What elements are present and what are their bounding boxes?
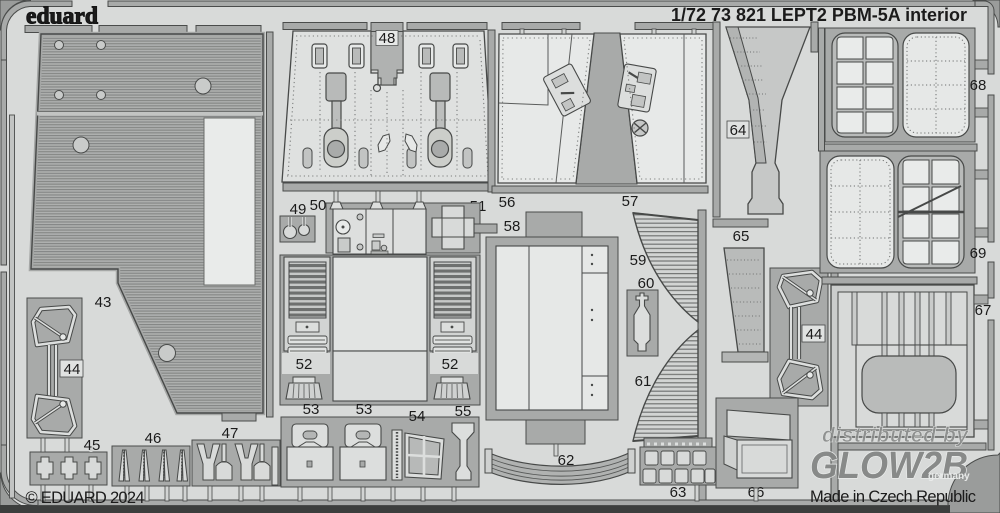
- svg-text:52: 52: [296, 356, 313, 373]
- svg-text:47: 47: [222, 425, 239, 442]
- svg-text:50: 50: [310, 197, 327, 214]
- svg-text:48: 48: [379, 30, 396, 47]
- svg-text:44: 44: [64, 361, 81, 378]
- svg-text:61: 61: [635, 373, 652, 390]
- svg-text:58: 58: [504, 218, 521, 235]
- svg-text:53: 53: [356, 401, 373, 418]
- svg-text:54: 54: [409, 408, 426, 425]
- svg-text:1/72 73 821 LEPT2 PBM-5A int: 1/72 73 821 LEPT2 PBM-5A interior: [671, 5, 967, 25]
- svg-text:57: 57: [622, 193, 639, 210]
- svg-text:germany: germany: [928, 471, 970, 482]
- svg-text:43: 43: [95, 294, 112, 311]
- svg-text:eduard: eduard: [26, 4, 99, 30]
- svg-text:60: 60: [638, 275, 655, 292]
- svg-text:69: 69: [970, 245, 987, 262]
- svg-text:53: 53: [303, 401, 320, 418]
- svg-text:52: 52: [442, 356, 459, 373]
- svg-text:45: 45: [84, 437, 101, 454]
- svg-text:67: 67: [975, 302, 992, 319]
- svg-text:59: 59: [630, 252, 647, 269]
- svg-text:63: 63: [670, 484, 687, 501]
- svg-text:65: 65: [733, 228, 750, 245]
- svg-text:55: 55: [455, 403, 472, 420]
- svg-text:Made in Czech Republic: Made in Czech Republic: [810, 488, 976, 506]
- svg-text:64: 64: [730, 122, 747, 139]
- svg-text:56: 56: [499, 194, 516, 211]
- svg-text:49: 49: [290, 201, 307, 218]
- svg-text:44: 44: [806, 326, 823, 343]
- svg-text:distributed by: distributed by: [822, 424, 969, 447]
- svg-text:© EDUARD 2024: © EDUARD 2024: [26, 489, 145, 507]
- svg-text:68: 68: [970, 77, 987, 94]
- svg-text:62: 62: [558, 452, 575, 469]
- svg-text:46: 46: [145, 430, 162, 447]
